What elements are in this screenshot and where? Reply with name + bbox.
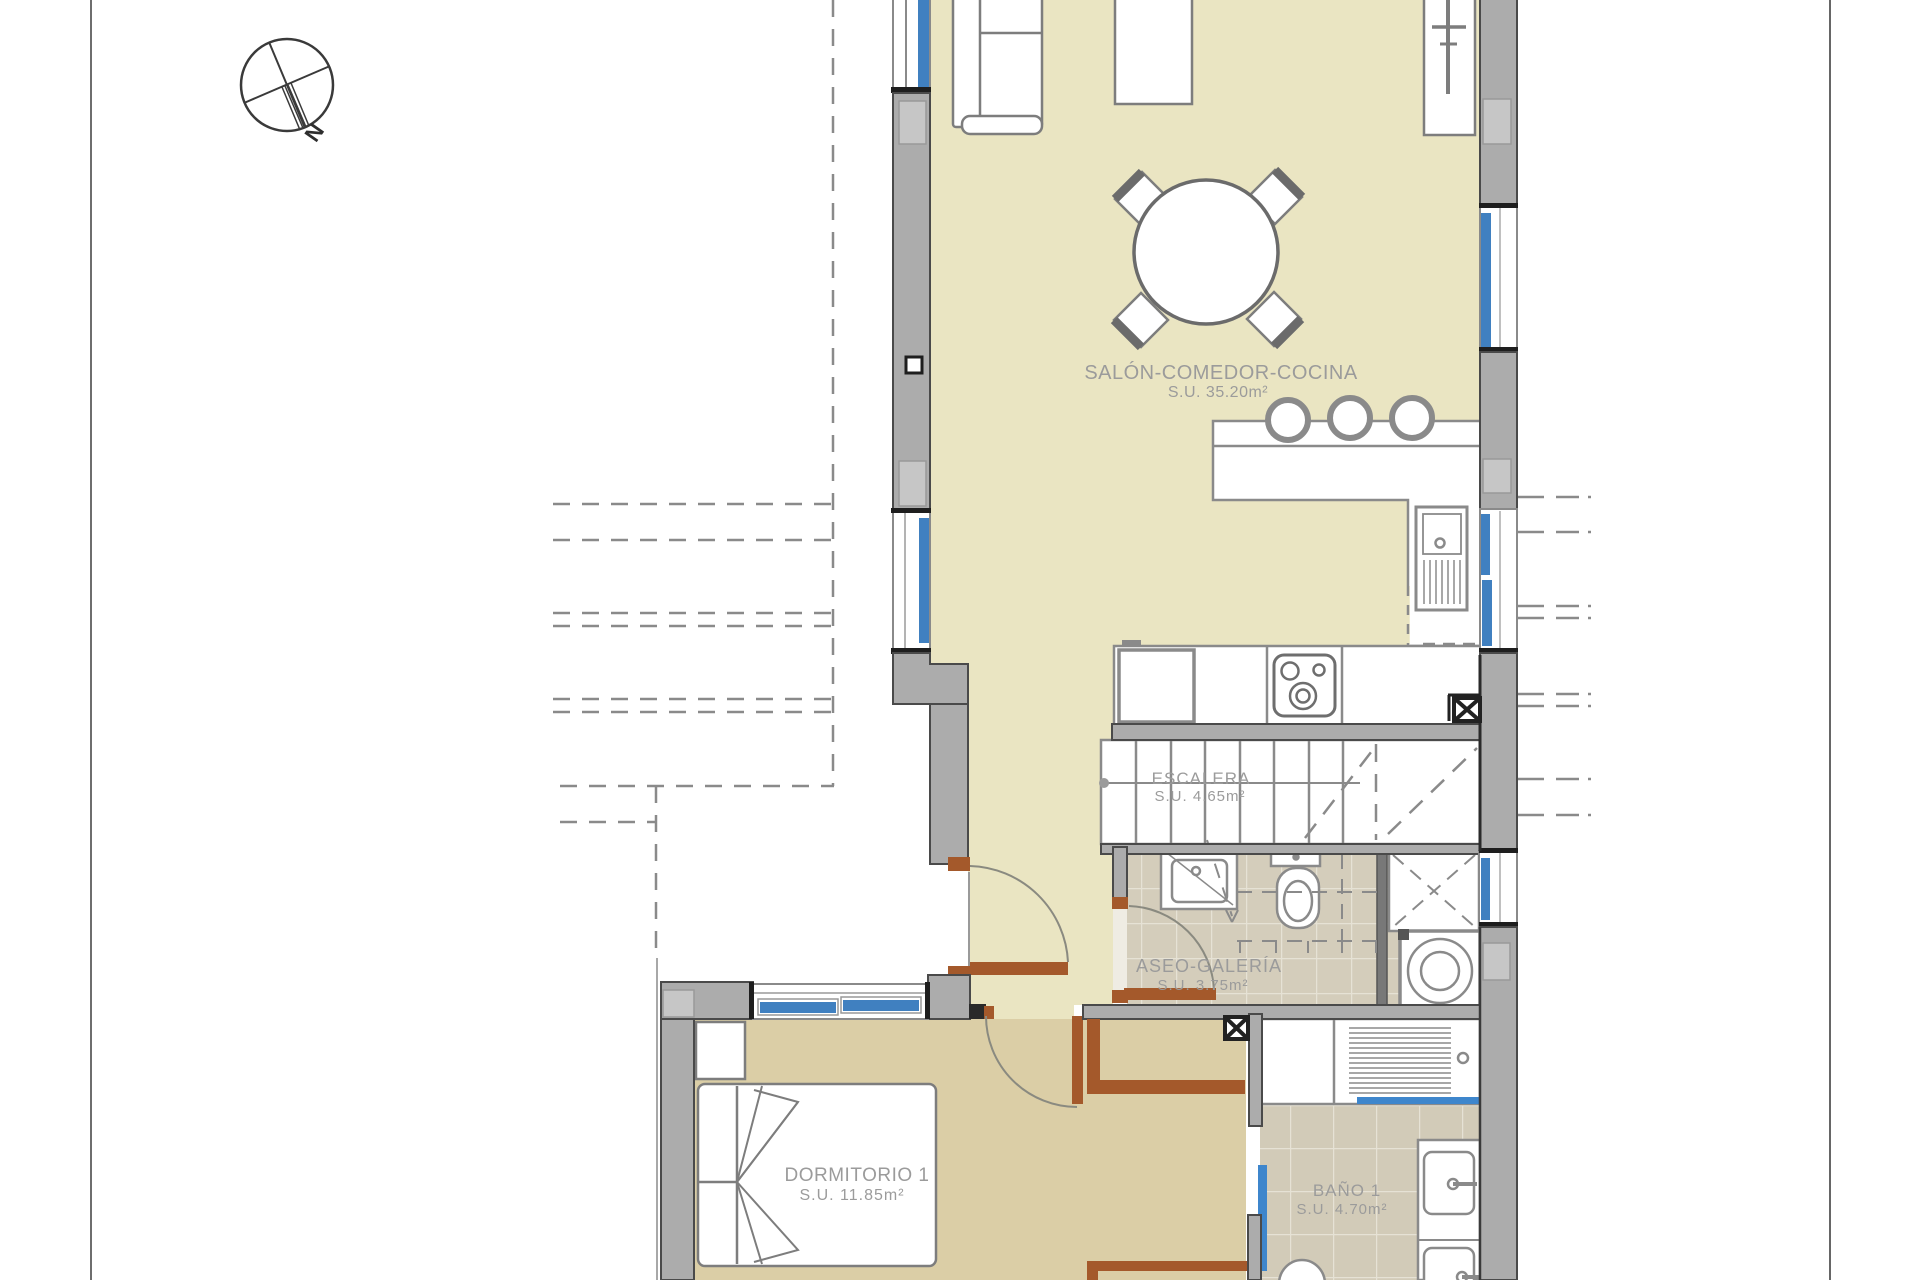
svg-text:ESCALERA: ESCALERA [1152,769,1251,788]
svg-text:BAÑO 1: BAÑO 1 [1313,1181,1381,1200]
svg-text:S.U. 11.85m²: S.U. 11.85m² [799,1187,904,1204]
svg-text:S.U. 35.20m²: S.U. 35.20m² [1168,384,1268,401]
svg-text:SALÓN-COMEDOR-COCINA: SALÓN-COMEDOR-COCINA [1084,361,1358,384]
svg-text:S.U. 4.65m²: S.U. 4.65m² [1154,788,1245,805]
svg-text:S.U. 3.75m²: S.U. 3.75m² [1157,977,1248,994]
svg-text:DORMITORIO 1: DORMITORIO 1 [785,1165,930,1186]
svg-text:S.U. 4.70m²: S.U. 4.70m² [1296,1201,1387,1218]
svg-text:ASEO-GALERÍA: ASEO-GALERÍA [1136,956,1282,976]
